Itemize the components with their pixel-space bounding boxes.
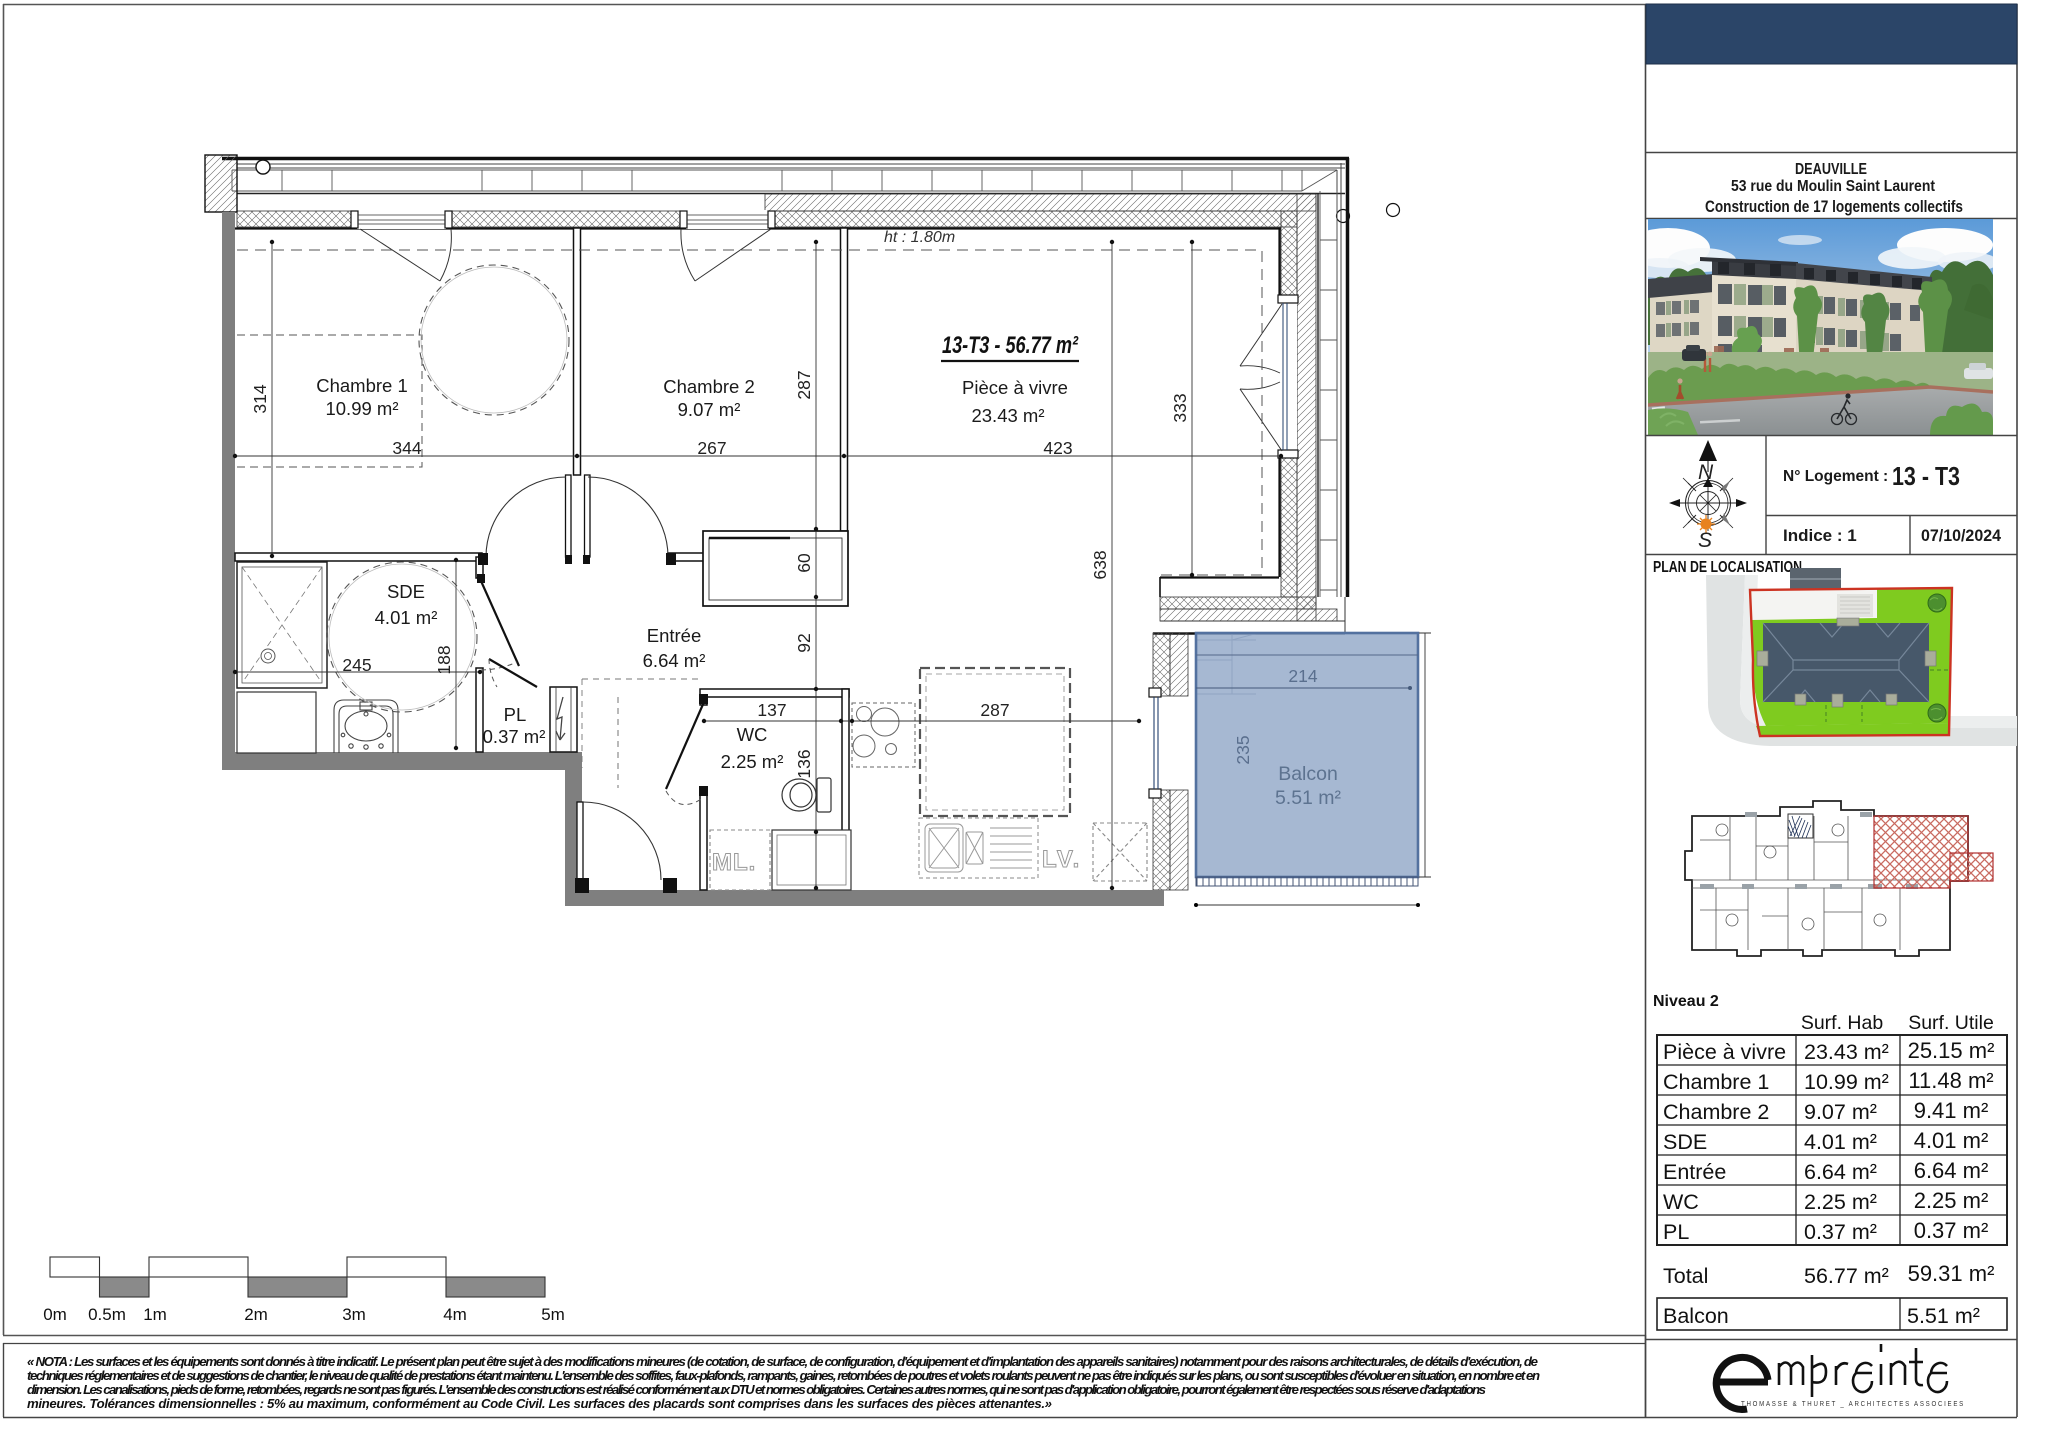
svg-text:LV.: LV. bbox=[1042, 846, 1081, 873]
svg-text:Balcon: Balcon bbox=[1663, 1304, 1729, 1328]
svg-text:10.99 m²: 10.99 m² bbox=[1804, 1070, 1889, 1094]
svg-text:214: 214 bbox=[1288, 666, 1317, 686]
svg-text:9.07 m²: 9.07 m² bbox=[678, 399, 741, 420]
svg-text:2m: 2m bbox=[244, 1305, 268, 1324]
svg-text:PL: PL bbox=[1663, 1220, 1689, 1244]
svg-text:« NOTA : Les surfaces et les é: « NOTA : Les surfaces et les équipements… bbox=[27, 1354, 1538, 1369]
svg-text:Entrée: Entrée bbox=[647, 625, 702, 646]
svg-text:SDE: SDE bbox=[1663, 1130, 1707, 1154]
svg-text:mineures. Tolérances dimension: mineures. Tolérances dimensionnelles : 5… bbox=[27, 1396, 1052, 1411]
svg-text:4.01 m²: 4.01 m² bbox=[1804, 1130, 1877, 1154]
svg-text:6.64 m²: 6.64 m² bbox=[1804, 1160, 1877, 1184]
svg-text:5m: 5m bbox=[541, 1305, 565, 1324]
svg-text:60: 60 bbox=[794, 553, 814, 573]
svg-text:23.43 m²: 23.43 m² bbox=[1804, 1040, 1889, 1064]
svg-text:PLAN DE LOCALISATION: PLAN DE LOCALISATION bbox=[1653, 559, 1802, 576]
svg-text:Chambre 1: Chambre 1 bbox=[316, 375, 408, 396]
svg-text:333: 333 bbox=[1170, 393, 1190, 422]
svg-text:THOMASSE & THURET _ ARCHITECTE: THOMASSE & THURET _ ARCHITECTES ASSOCIEE… bbox=[1741, 1401, 1965, 1408]
svg-text:235: 235 bbox=[1233, 735, 1253, 764]
svg-text:0m: 0m bbox=[43, 1305, 67, 1324]
svg-text:188: 188 bbox=[434, 645, 454, 674]
svg-text:DEAUVILLE: DEAUVILLE bbox=[1795, 161, 1867, 178]
svg-text:2.25 m²: 2.25 m² bbox=[721, 751, 784, 772]
svg-text:Indice : 1: Indice : 1 bbox=[1783, 526, 1857, 545]
svg-text:344: 344 bbox=[392, 438, 421, 458]
svg-text:ML.: ML. bbox=[712, 849, 756, 876]
svg-text:5.51 m²: 5.51 m² bbox=[1275, 787, 1342, 809]
svg-text:136: 136 bbox=[794, 749, 814, 778]
svg-text:PL: PL bbox=[504, 704, 527, 725]
svg-text:Pièce à vivre: Pièce à vivre bbox=[962, 377, 1068, 398]
svg-text:Surf. Utile: Surf. Utile bbox=[1908, 1012, 1994, 1034]
svg-text:2.25 m²: 2.25 m² bbox=[1914, 1188, 1989, 1213]
svg-text:Construction de 17 logements c: Construction de 17 logements collectifs bbox=[1705, 198, 1963, 216]
svg-text:3m: 3m bbox=[342, 1305, 366, 1324]
svg-text:Balcon: Balcon bbox=[1278, 763, 1338, 785]
svg-text:11.48 m²: 11.48 m² bbox=[1908, 1068, 1993, 1093]
svg-text:267: 267 bbox=[697, 438, 726, 458]
svg-text:13-T3 - 56.77 m²: 13-T3 - 56.77 m² bbox=[942, 332, 1079, 359]
svg-text:10.99 m²: 10.99 m² bbox=[325, 398, 398, 419]
svg-text:07/10/2024: 07/10/2024 bbox=[1921, 526, 2002, 545]
svg-text:0.37 m²: 0.37 m² bbox=[1914, 1218, 1989, 1243]
svg-text:Chambre 1: Chambre 1 bbox=[1663, 1070, 1769, 1094]
svg-text:dimension. Les canalisations,: dimension. Les canalisations, pieds de f… bbox=[27, 1382, 1486, 1397]
svg-text:Entrée: Entrée bbox=[1663, 1160, 1726, 1184]
svg-text:ht : 1.80m: ht : 1.80m bbox=[884, 229, 955, 246]
svg-text:4.01 m²: 4.01 m² bbox=[1914, 1128, 1989, 1153]
svg-text:4.01 m²: 4.01 m² bbox=[375, 607, 438, 628]
svg-text:287: 287 bbox=[980, 700, 1009, 720]
svg-text:13 - T3: 13 - T3 bbox=[1892, 461, 1960, 491]
svg-text:137: 137 bbox=[757, 700, 786, 720]
svg-text:WC: WC bbox=[1663, 1190, 1699, 1214]
svg-text:314: 314 bbox=[250, 384, 270, 413]
svg-text:Chambre 2: Chambre 2 bbox=[1663, 1100, 1769, 1124]
svg-text:6.64 m²: 6.64 m² bbox=[1914, 1158, 1989, 1183]
svg-text:Pièce à vivre: Pièce à vivre bbox=[1663, 1040, 1786, 1064]
svg-text:N° Logement :: N° Logement : bbox=[1783, 468, 1888, 485]
svg-text:Total: Total bbox=[1663, 1264, 1708, 1288]
svg-text:53 rue du Moulin Saint Laurent: 53 rue du Moulin Saint Laurent bbox=[1731, 178, 1936, 195]
svg-text:92: 92 bbox=[794, 633, 814, 652]
svg-text:59.31 m²: 59.31 m² bbox=[1908, 1261, 1995, 1286]
svg-text:23.43 m²: 23.43 m² bbox=[971, 405, 1044, 426]
svg-text:SDE: SDE bbox=[387, 581, 425, 602]
svg-text:5.51 m²: 5.51 m² bbox=[1907, 1304, 1980, 1328]
svg-text:25.15 m²: 25.15 m² bbox=[1908, 1038, 1995, 1063]
svg-text:Chambre 2: Chambre 2 bbox=[663, 376, 755, 397]
svg-text:287: 287 bbox=[794, 370, 814, 399]
svg-text:423: 423 bbox=[1043, 438, 1072, 458]
svg-text:9.41 m²: 9.41 m² bbox=[1914, 1098, 1989, 1123]
svg-text:1m: 1m bbox=[143, 1305, 167, 1324]
svg-text:0.37 m²: 0.37 m² bbox=[483, 726, 546, 747]
svg-text:techniques réglementaires et d: techniques réglementaires et de suggesti… bbox=[27, 1368, 1540, 1383]
svg-text:Niveau 2: Niveau 2 bbox=[1653, 993, 1719, 1010]
svg-text:0.5m: 0.5m bbox=[88, 1305, 126, 1324]
svg-text:WC: WC bbox=[737, 724, 768, 745]
svg-text:S: S bbox=[1698, 529, 1712, 552]
svg-text:638: 638 bbox=[1090, 550, 1110, 579]
svg-text:9.07 m²: 9.07 m² bbox=[1804, 1100, 1877, 1124]
svg-text:2.25 m²: 2.25 m² bbox=[1804, 1190, 1877, 1214]
svg-text:0.37 m²: 0.37 m² bbox=[1804, 1220, 1877, 1244]
svg-text:245: 245 bbox=[342, 655, 371, 675]
svg-text:Surf. Hab: Surf. Hab bbox=[1801, 1012, 1884, 1034]
svg-text:56.77 m²: 56.77 m² bbox=[1804, 1264, 1889, 1288]
svg-text:6.64 m²: 6.64 m² bbox=[643, 650, 706, 671]
svg-text:4m: 4m bbox=[443, 1305, 467, 1324]
